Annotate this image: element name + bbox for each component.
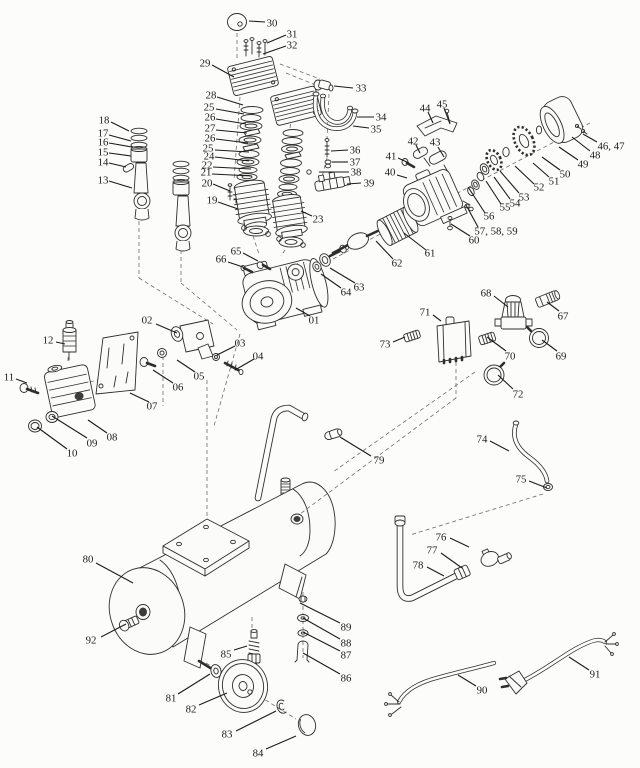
part-label-23: 23 — [313, 214, 324, 226]
leader-line-20 — [213, 184, 230, 191]
leader-line-40 — [397, 175, 407, 178]
part-label-75: 75 — [516, 474, 527, 486]
part-label-33: 33 — [356, 83, 367, 95]
part-label-60: 60 — [469, 235, 480, 247]
part-label-13: 13 — [98, 175, 109, 187]
leader-line-71 — [433, 315, 441, 321]
part-label-81: 81 — [166, 693, 177, 705]
leader-line-08 — [88, 420, 107, 433]
leader-line-31 — [267, 35, 286, 43]
leader-line-87 — [303, 632, 340, 651]
part-label-90: 90 — [477, 685, 488, 697]
part-label-08: 08 — [107, 432, 118, 444]
part-label-68: 68 — [481, 288, 492, 300]
part-label-54: 54 — [510, 198, 521, 210]
part-label-66: 66 — [216, 254, 227, 266]
part-label-34: 34 — [376, 112, 387, 124]
leader-line-09 — [52, 416, 87, 438]
part-label-10: 10 — [67, 448, 78, 460]
leader-line-52 — [515, 166, 534, 184]
power-cord-drawing — [385, 633, 619, 717]
leader-line-78 — [427, 567, 444, 576]
leader-line-16 — [109, 143, 132, 147]
leader-line-74 — [490, 441, 509, 451]
leader-line-18 — [111, 122, 129, 131]
part-label-36: 36 — [350, 145, 361, 157]
part-label-11: 11 — [4, 372, 14, 384]
part-label-38: 38 — [351, 167, 362, 179]
part-label-67: 67 — [558, 311, 569, 323]
part-label-86: 86 — [341, 673, 352, 685]
part-label-03: 03 — [235, 338, 246, 350]
leader-line-63 — [330, 268, 355, 283]
diagram-artwork: 3031322933343528252627262524222120192318… — [0, 0, 640, 768]
part-label-35: 35 — [371, 124, 382, 136]
leader-line-91 — [569, 657, 589, 670]
leader-line-76 — [450, 538, 469, 547]
unloader-fittings-drawing — [307, 139, 351, 192]
leader-line-27 — [216, 130, 247, 133]
part-label-29: 29 — [200, 58, 211, 70]
part-label-18: 18 — [99, 115, 110, 127]
part-label-07: 07 — [147, 401, 158, 413]
leader-line-88 — [303, 618, 340, 639]
part-label-42: 42 — [408, 136, 419, 148]
part-label-52: 52 — [534, 182, 545, 194]
leader-line-17 — [109, 135, 131, 141]
leader-line-04 — [235, 359, 254, 370]
leader-line-79 — [340, 437, 371, 456]
leader-line-70 — [487, 337, 506, 351]
part-label-78: 78 — [413, 560, 424, 572]
part-label-19: 19 — [207, 195, 218, 207]
leader-line-46-47 — [583, 134, 597, 142]
leader-line-60 — [451, 224, 470, 236]
part-label-73: 73 — [380, 339, 391, 351]
leader-line-32 — [263, 46, 286, 54]
leader-line-10 — [37, 427, 67, 449]
cylinder-drawing — [228, 178, 309, 247]
part-label-80: 80 — [83, 554, 94, 566]
intercooler-pipe-drawing — [313, 80, 358, 129]
leader-line-35 — [353, 126, 369, 128]
leader-line-15 — [109, 153, 131, 156]
part-label-30: 30 — [267, 18, 278, 30]
part-label-20: 20 — [202, 178, 213, 190]
part-label-06: 06 — [173, 382, 184, 394]
part-label-12: 12 — [43, 335, 54, 347]
leader-line-03 — [217, 346, 235, 355]
part-label-64: 64 — [341, 287, 352, 299]
leader-line-28 — [217, 97, 243, 105]
leader-line-84 — [266, 736, 296, 749]
leader-line-36 — [331, 150, 348, 151]
leader-line-83 — [236, 711, 276, 731]
part-label-82: 82 — [186, 704, 197, 716]
leader-line-14 — [109, 163, 126, 167]
part-label-09: 09 — [87, 438, 98, 450]
part-label-39: 39 — [364, 178, 375, 190]
part-label-45: 45 — [437, 99, 448, 111]
part-label-43: 43 — [430, 137, 441, 149]
pressure-switch-drawing — [403, 317, 471, 363]
part-label-56: 56 — [484, 211, 495, 223]
leader-line-51 — [533, 163, 549, 177]
part-label-84: 84 — [253, 748, 264, 760]
plug-79-drawing — [324, 428, 343, 441]
mount-bracket-drawing — [140, 320, 243, 375]
part-label-89: 89 — [341, 622, 352, 634]
part-label-14: 14 — [98, 157, 109, 169]
part-label-28: 28 — [206, 90, 217, 102]
leader-line-26 — [216, 119, 246, 124]
part-label-74: 74 — [477, 434, 488, 446]
part-label-05: 05 — [194, 371, 205, 383]
leader-line-49 — [559, 147, 578, 160]
leader-line-73 — [393, 337, 405, 342]
leader-line-77 — [441, 553, 462, 568]
part-label-32: 32 — [287, 40, 298, 52]
part-label-55: 55 — [500, 202, 511, 214]
part-label-44: 44 — [420, 103, 431, 115]
part-label-85: 85 — [221, 649, 232, 661]
part-label-83: 83 — [222, 729, 233, 741]
wheel-drawing — [209, 655, 317, 737]
part-label-88: 88 — [341, 638, 352, 650]
leader-line-81 — [178, 674, 210, 694]
part-label-79: 79 — [374, 455, 385, 467]
leader-line-90 — [458, 675, 476, 686]
leader-line-66 — [228, 262, 243, 267]
part-label-87: 87 — [341, 650, 352, 662]
leader-line-50 — [542, 157, 560, 170]
part-label-51: 51 — [549, 176, 560, 188]
part-label-63: 63 — [354, 282, 365, 294]
part-label-57-58-59: 57, 58, 59 — [474, 226, 517, 238]
leader-line-61 — [404, 233, 426, 250]
part-label-04: 04 — [253, 351, 264, 363]
part-label-69: 69 — [556, 351, 567, 363]
part-label-72: 72 — [513, 389, 524, 401]
part-label-40: 40 — [385, 167, 396, 179]
part-label-41: 41 — [386, 151, 397, 163]
leader-line-11 — [16, 379, 27, 383]
part-label-62: 62 — [392, 258, 403, 270]
piston-assembly-drawing — [122, 128, 191, 251]
exploded-parts-diagram: 3031322933343528252627262524222120192318… — [0, 0, 640, 768]
part-label-77: 77 — [427, 545, 438, 557]
leader-line-25 — [216, 109, 244, 114]
part-label-61: 61 — [425, 248, 436, 260]
part-label-65: 65 — [231, 246, 242, 258]
part-label-92: 92 — [86, 635, 97, 647]
leader-line-48 — [572, 137, 590, 151]
drain-pipe-drawing — [395, 516, 513, 599]
leader-line-85 — [234, 646, 247, 650]
part-label-48: 48 — [590, 150, 601, 162]
part-label-46-47: 46, 47 — [598, 141, 626, 153]
leader-line-13 — [109, 181, 132, 188]
part-label-01: 01 — [309, 315, 320, 327]
part-label-50: 50 — [560, 169, 571, 181]
leader-line-05 — [177, 360, 195, 372]
part-label-71: 71 — [420, 307, 431, 319]
leader-line-86 — [303, 653, 340, 674]
part-label-91: 91 — [590, 669, 601, 681]
leader-line-19 — [218, 202, 238, 209]
part-label-02: 02 — [142, 315, 153, 327]
part-label-76: 76 — [436, 532, 447, 544]
leader-line-33 — [334, 86, 353, 88]
leader-line-65 — [243, 253, 258, 261]
part-label-49: 49 — [578, 159, 589, 171]
filter-assembly-drawing — [20, 321, 138, 433]
leader-line-30 — [249, 21, 265, 22]
part-label-70: 70 — [505, 351, 516, 363]
